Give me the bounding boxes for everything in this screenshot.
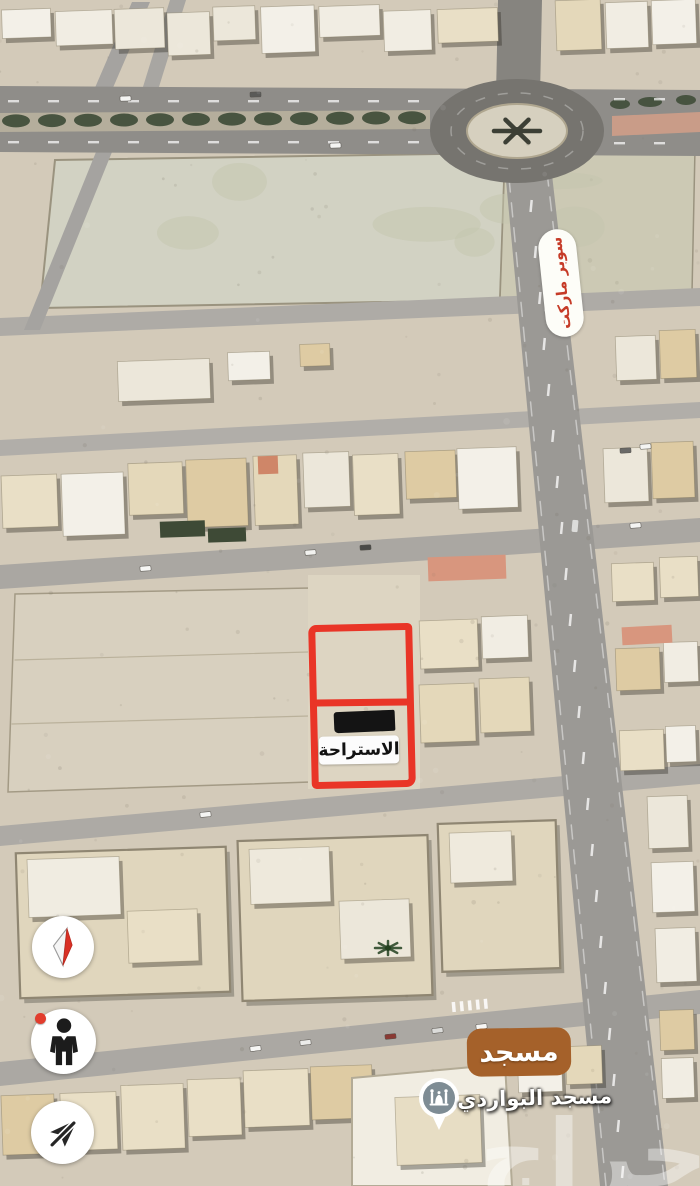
navigation-off-icon	[43, 1113, 83, 1153]
location-button[interactable]	[31, 1101, 94, 1164]
plot-divider-line	[314, 698, 410, 706]
satellite-map-view[interactable]: الاستراحة سوبر ماركت مسجد مسجد البواردي …	[0, 0, 700, 1186]
satellite-imagery	[0, 0, 700, 1186]
compass-button[interactable]	[32, 916, 94, 978]
mosque-poi-pin[interactable]	[416, 1077, 462, 1133]
redacted-text-bar	[334, 710, 396, 734]
compass-icon	[44, 924, 82, 970]
plot-label: الاستراحة	[319, 735, 399, 764]
mosque-poi-name: مسجد البواردي	[457, 1084, 613, 1112]
pegman-icon	[44, 1015, 84, 1069]
notification-dot	[35, 1013, 46, 1024]
mosque-icon	[419, 1078, 459, 1130]
mosque-badge: مسجد	[467, 1027, 572, 1077]
